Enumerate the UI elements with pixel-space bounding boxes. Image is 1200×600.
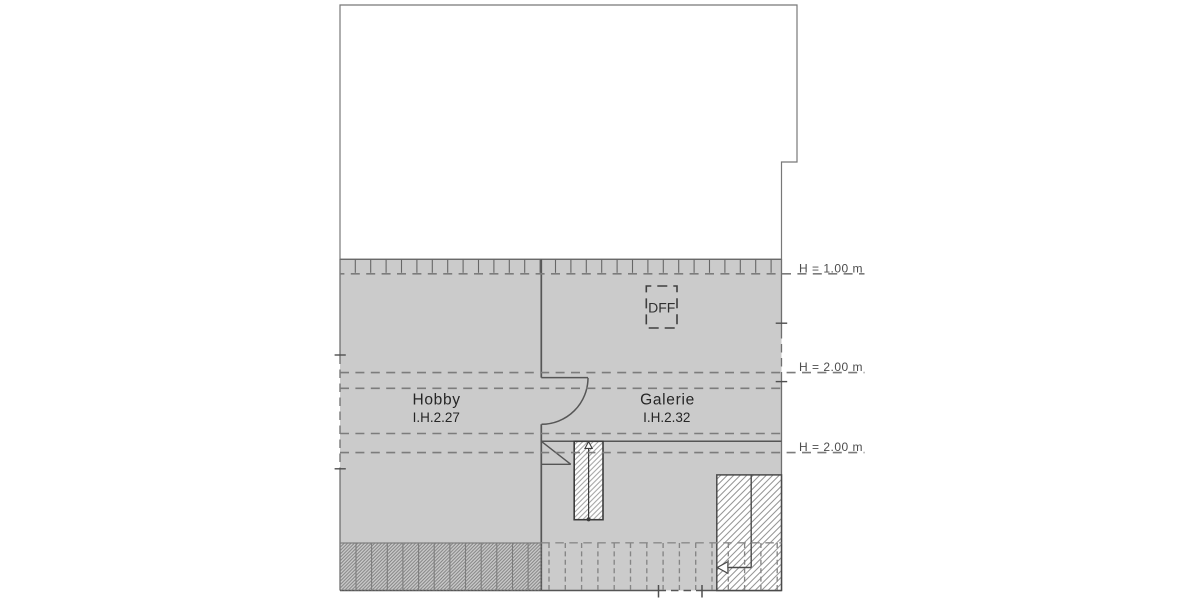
svg-text:Galerie: Galerie: [640, 392, 695, 409]
svg-text:H = 2.00 m: H = 2.00 m: [799, 360, 863, 374]
svg-text:I.H.2.27: I.H.2.27: [413, 410, 460, 425]
svg-text:DFF: DFF: [648, 300, 675, 316]
svg-text:Hobby: Hobby: [412, 392, 460, 409]
svg-text:I.H.2.32: I.H.2.32: [643, 410, 690, 425]
svg-text:H = 2.00 m: H = 2.00 m: [799, 440, 863, 454]
svg-text:H = 1.00 m: H = 1.00 m: [799, 261, 863, 275]
